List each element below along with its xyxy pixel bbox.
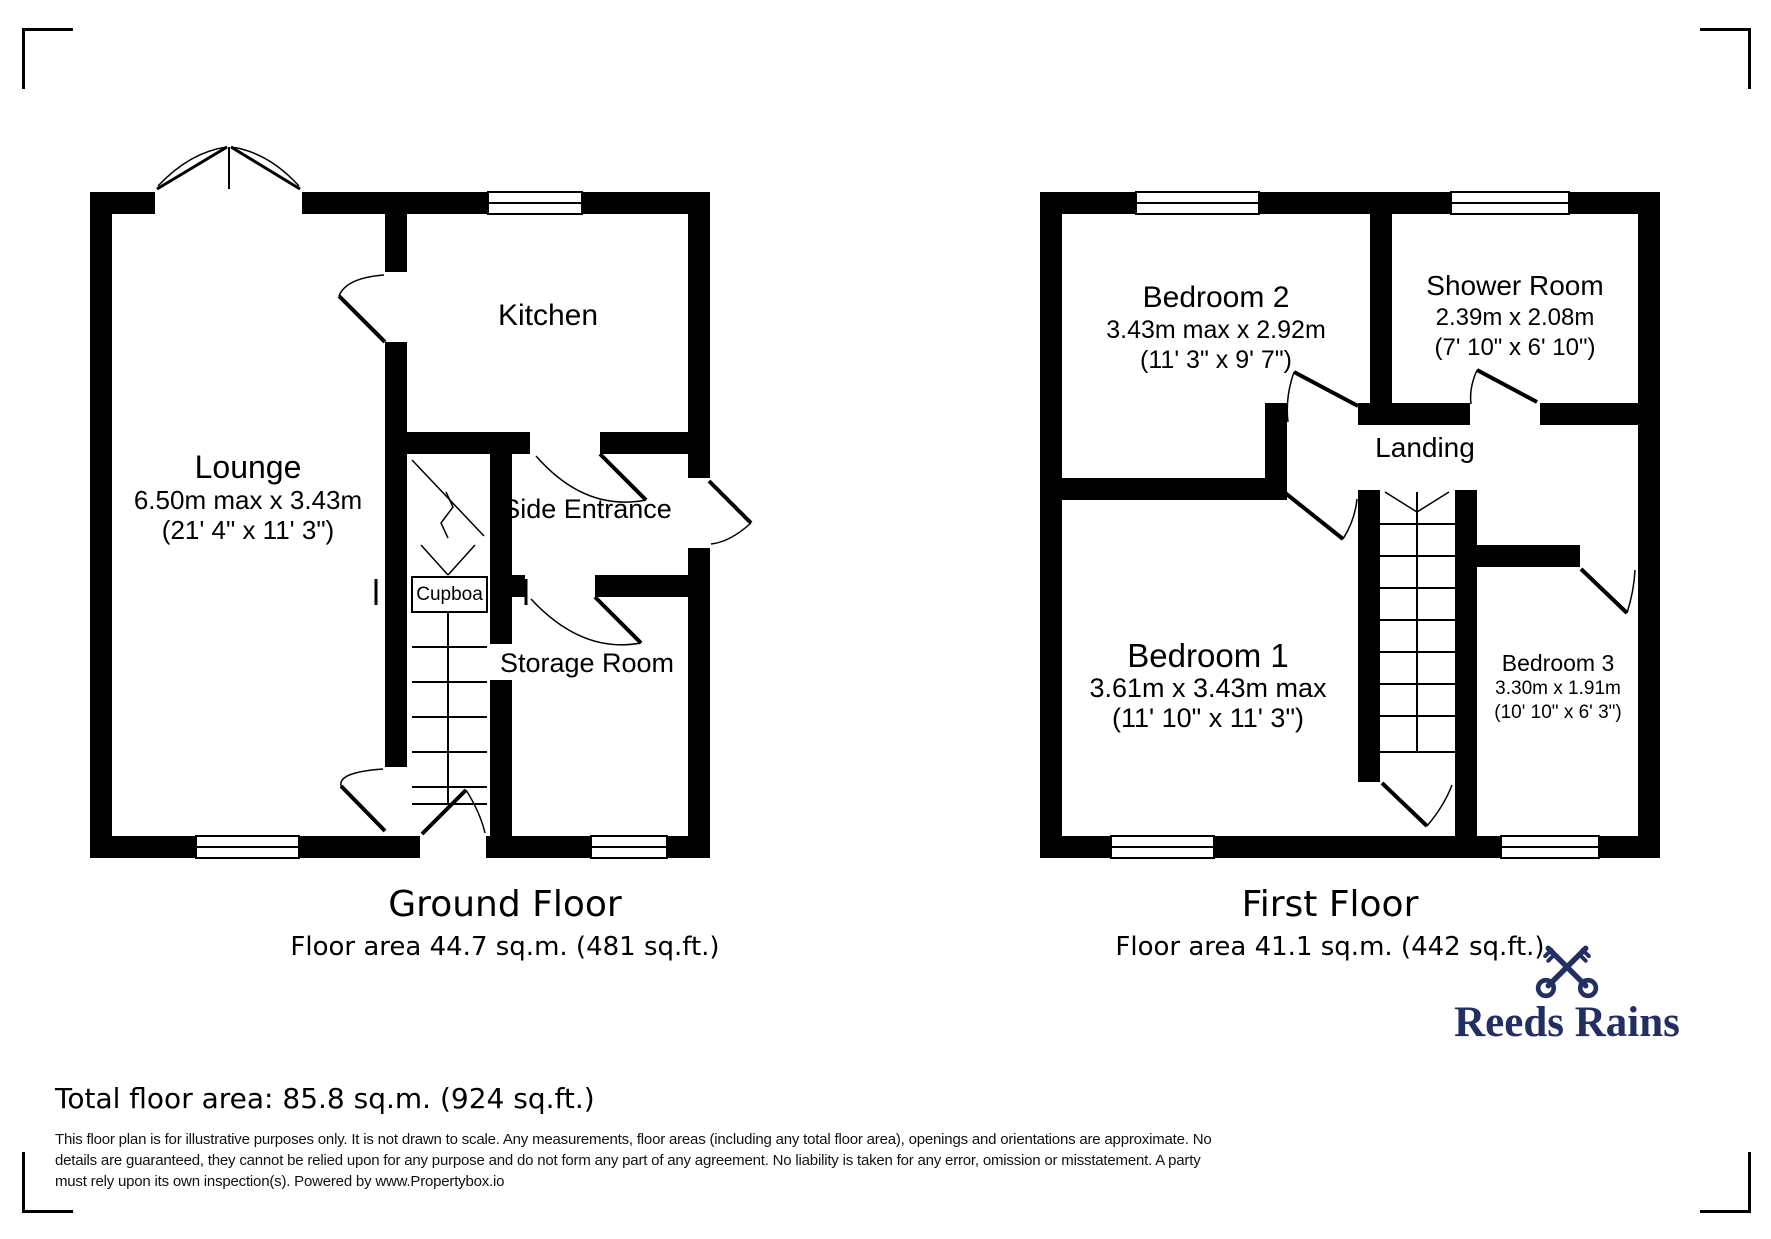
room-name: Landing [1375, 430, 1475, 465]
room-name: Shower Room [1426, 268, 1603, 303]
room-dim-imperial: (21' 4" x 11' 3") [134, 515, 362, 545]
room-name: Bedroom 1 [1089, 638, 1326, 673]
room-dim-metric: 3.61m x 3.43m max [1089, 673, 1326, 703]
door-swings [339, 275, 751, 834]
room-dim-metric: 3.30m x 1.91m [1494, 677, 1621, 701]
room-name: Storage Room [500, 646, 674, 681]
room-label-shower-room: Shower Room 2.39m x 2.08m (7' 10" x 6' 1… [1426, 268, 1603, 363]
room-label-storage-room: Storage Room [500, 646, 674, 681]
floor-plan-page: Lounge 6.50m max x 3.43m (21' 4" x 11' 3… [0, 0, 1771, 1239]
first-floor-plan: Bedroom 2 3.43m max x 2.92m (11' 3" x 9'… [1040, 192, 1660, 858]
room-label-bedroom-1: Bedroom 1 3.61m x 3.43m max (11' 10" x 1… [1089, 638, 1326, 733]
entrance-double-door [157, 147, 300, 189]
disclaimer-line-3: must rely upon its own inspection(s). Po… [55, 1171, 504, 1192]
room-label-landing: Landing [1375, 430, 1475, 465]
room-label-bedroom-2: Bedroom 2 3.43m max x 2.92m (11' 3" x 9'… [1106, 280, 1326, 375]
crop-mark-top-left [22, 28, 73, 89]
ground-floor-area: Floor area 44.7 sq.m. (481 sq.ft.) [90, 932, 920, 962]
room-name: Kitchen [498, 298, 598, 333]
room-name: Side Entrance [502, 492, 672, 527]
room-label-bedroom-3: Bedroom 3 3.30m x 1.91m (10' 10" x 6' 3"… [1494, 650, 1621, 725]
room-dim-metric: 6.50m max x 3.43m [134, 485, 362, 515]
room-label-kitchen: Kitchen [498, 298, 598, 333]
stairs [1380, 492, 1455, 752]
crop-mark-top-right [1700, 28, 1751, 89]
room-dim-imperial: (11' 3" x 9' 7") [1106, 345, 1326, 375]
room-dim-imperial: (10' 10" x 6' 3") [1494, 701, 1621, 725]
first-floor-details-svg [1040, 132, 1660, 858]
room-dim-imperial: (11' 10" x 11' 3") [1089, 703, 1326, 733]
room-name: Bedroom 3 [1494, 650, 1621, 677]
logo-text: Reeds Rains [1417, 998, 1717, 1047]
room-label-cupboard: Cupboa [412, 578, 487, 611]
room-label-lounge: Lounge 6.50m max x 3.43m (21' 4" x 11' 3… [134, 450, 362, 545]
disclaimer-line-1: This floor plan is for illustrative purp… [55, 1129, 1211, 1150]
room-label-side-entrance: Side Entrance [502, 492, 672, 527]
room-name: Lounge [134, 450, 362, 485]
room-name: Bedroom 2 [1106, 280, 1326, 315]
first-floor-title: First Floor [1040, 884, 1620, 925]
ground-floor-title: Ground Floor [90, 884, 920, 925]
total-floor-area: Total floor area: 85.8 sq.m. (924 sq.ft.… [55, 1082, 595, 1115]
crossed-keys-logo-icon [1522, 928, 1612, 1006]
room-dim-metric: 2.39m x 2.08m [1426, 303, 1603, 333]
room-dim-imperial: (7' 10" x 6' 10") [1426, 333, 1603, 363]
room-dim-metric: 3.43m max x 2.92m [1106, 315, 1326, 345]
crop-mark-bottom-right [1700, 1152, 1751, 1213]
ground-floor-plan: Lounge 6.50m max x 3.43m (21' 4" x 11' 3… [90, 192, 710, 858]
disclaimer-line-2: details are guaranteed, they cannot be r… [55, 1150, 1201, 1171]
